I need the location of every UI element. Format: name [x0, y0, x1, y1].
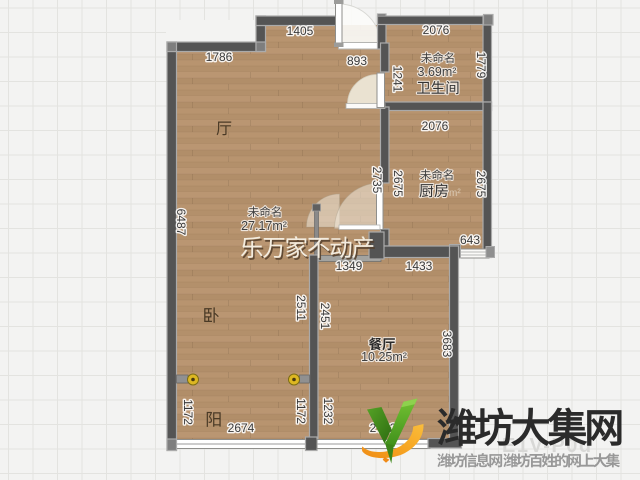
svg-text:3683: 3683: [440, 331, 454, 358]
svg-text:1433: 1433: [406, 259, 433, 273]
svg-text:2451: 2451: [318, 303, 332, 330]
svg-text:1405: 1405: [287, 24, 314, 38]
svg-text:未命名: 未命名: [421, 50, 456, 66]
svg-text:893: 893: [347, 54, 367, 68]
svg-text:m²: m²: [449, 184, 461, 199]
svg-text:阳: 阳: [205, 406, 222, 431]
svg-text:1786: 1786: [206, 50, 233, 64]
svg-text:卫生间: 卫生间: [416, 77, 460, 98]
svg-text:潍坊信息网 潍坊百姓的网上大集: 潍坊信息网 潍坊百姓的网上大集: [437, 450, 620, 471]
svg-text:6487: 6487: [174, 209, 188, 236]
svg-text:2675: 2675: [474, 171, 488, 198]
svg-text:未命名: 未命名: [248, 204, 283, 220]
svg-text:2735: 2735: [370, 167, 384, 194]
svg-text:10.25m²: 10.25m²: [361, 350, 407, 364]
svg-text:2674: 2674: [228, 421, 255, 435]
svg-text:厨房: 厨房: [419, 180, 449, 201]
svg-text:1779: 1779: [474, 52, 488, 79]
svg-text:乐万家不动产: 乐万家不动产: [240, 229, 374, 263]
svg-text:1232: 1232: [321, 398, 335, 425]
svg-text:卧: 卧: [203, 302, 220, 327]
svg-text:厅: 厅: [216, 115, 232, 139]
svg-text:643: 643: [460, 233, 480, 247]
svg-text:2076: 2076: [423, 23, 450, 37]
svg-text:1241: 1241: [391, 66, 405, 93]
svg-text:2675: 2675: [391, 170, 405, 197]
svg-text:1172: 1172: [181, 399, 195, 425]
svg-text:2511: 2511: [294, 295, 308, 321]
svg-text:2076: 2076: [422, 119, 449, 133]
svg-text:潍坊大集网: 潍坊大集网: [437, 396, 621, 454]
svg-text:1172: 1172: [294, 398, 308, 424]
